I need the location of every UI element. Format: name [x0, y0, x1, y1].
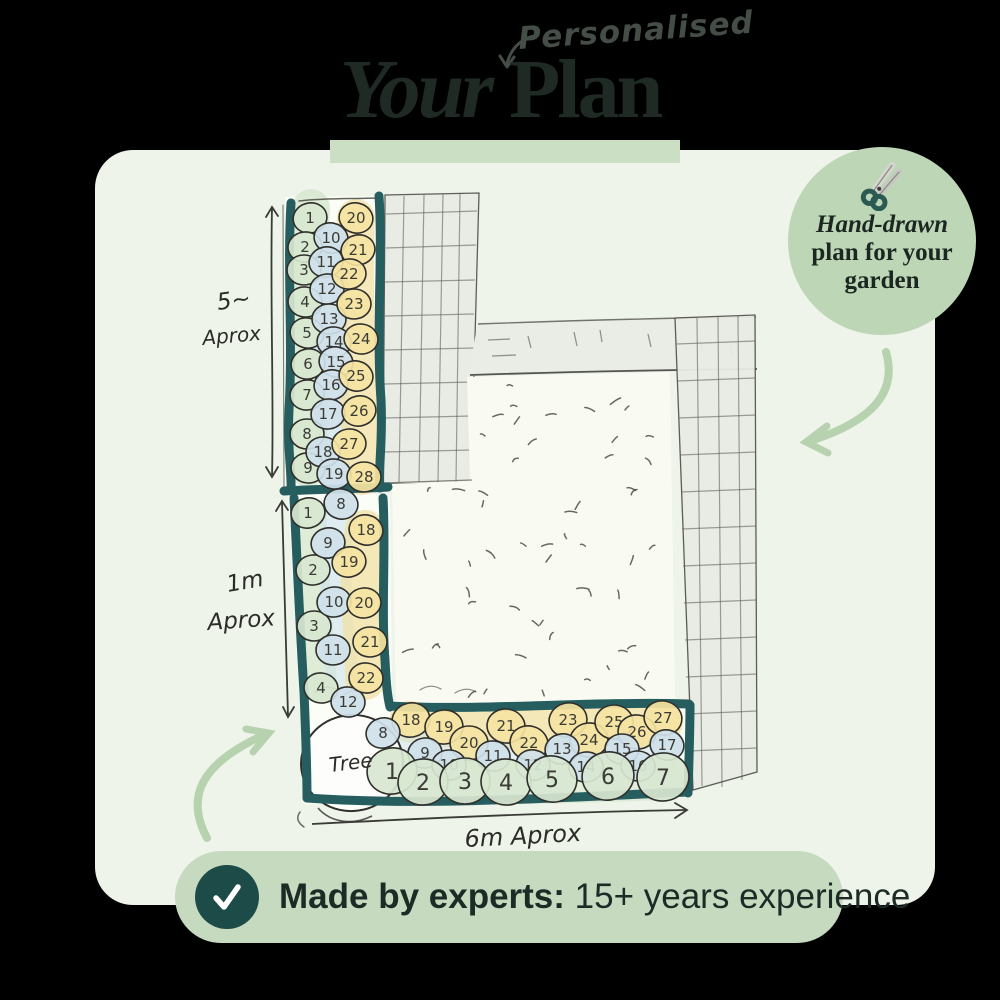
svg-text:12: 12 [317, 280, 336, 298]
svg-text:2: 2 [416, 771, 430, 796]
svg-text:27: 27 [339, 435, 358, 453]
scissors-icon [856, 161, 908, 211]
banner-text: Made by experts: 15+ years experience [279, 877, 910, 917]
svg-text:7: 7 [302, 386, 312, 404]
badge-line3: garden [811, 267, 952, 295]
measurement-left-lower: 1m Aprox [205, 501, 294, 717]
svg-text:3: 3 [299, 261, 309, 279]
svg-text:2: 2 [308, 561, 318, 579]
svg-text:20: 20 [459, 734, 478, 752]
patio-grid-top [383, 193, 479, 484]
svg-text:2: 2 [300, 238, 310, 256]
svg-text:17: 17 [318, 405, 337, 423]
svg-text:6: 6 [303, 355, 313, 373]
badge-arrow-icon [806, 352, 889, 453]
svg-text:26: 26 [349, 402, 368, 420]
svg-text:6: 6 [601, 765, 615, 790]
badge-line1: Hand-drawn [811, 211, 952, 239]
svg-text:7: 7 [656, 766, 670, 791]
dimension-label: 6m Aprox [464, 819, 583, 853]
measurement-left-upper: 5~ Aprox [199, 207, 278, 477]
badge-text: Hand-drawn plan for your garden [811, 211, 952, 295]
svg-text:18: 18 [401, 711, 420, 729]
svg-text:22: 22 [339, 265, 358, 283]
svg-text:8: 8 [302, 425, 312, 443]
svg-text:1: 1 [305, 209, 315, 227]
svg-text:13: 13 [319, 310, 338, 328]
svg-text:12: 12 [338, 693, 357, 711]
svg-text:10: 10 [321, 229, 340, 247]
svg-text:21: 21 [360, 633, 379, 651]
svg-text:24: 24 [351, 330, 370, 348]
svg-text:4: 4 [499, 771, 513, 796]
hand-drawn-badge: Hand-drawn plan for your garden [788, 147, 976, 335]
bottom-left-arrow-icon [198, 729, 269, 838]
plan-svg: 1234567891011121314151617181920212223242… [0, 0, 1000, 1000]
svg-text:22: 22 [356, 669, 375, 687]
svg-text:3: 3 [458, 770, 472, 795]
garden-plan: 1234567891011121314151617181920212223242… [198, 193, 889, 853]
svg-text:24: 24 [579, 731, 598, 749]
badge-line2: plan for your [811, 239, 952, 267]
svg-text:27: 27 [653, 709, 672, 727]
plant-11: 11 [316, 635, 350, 665]
svg-text:20: 20 [354, 594, 373, 612]
banner-regular: 15+ years experience [565, 877, 910, 916]
dimension-label: 1m [225, 566, 266, 598]
plant-23: 23 [337, 289, 371, 319]
dimension-label: 5~ [215, 285, 252, 315]
svg-text:18: 18 [356, 521, 375, 539]
dimension-unit: Aprox [205, 605, 277, 636]
svg-text:20: 20 [346, 209, 365, 227]
banner-bold: Made by experts: [279, 877, 565, 916]
svg-text:19: 19 [324, 465, 343, 483]
svg-text:13: 13 [552, 740, 571, 758]
svg-text:28: 28 [354, 468, 373, 486]
svg-text:23: 23 [558, 711, 577, 729]
svg-text:19: 19 [339, 553, 358, 571]
svg-text:16: 16 [321, 376, 340, 394]
svg-text:3: 3 [309, 617, 319, 635]
svg-text:5: 5 [545, 768, 559, 793]
svg-text:8: 8 [336, 495, 346, 513]
svg-text:9: 9 [323, 534, 333, 552]
svg-text:5: 5 [302, 324, 312, 342]
page: Personalised Your Plan [0, 0, 1000, 1000]
svg-text:8: 8 [378, 724, 388, 742]
svg-text:23: 23 [344, 295, 363, 313]
svg-text:1: 1 [385, 760, 399, 785]
plant-21: 21 [353, 627, 387, 657]
svg-text:4: 4 [300, 293, 310, 311]
measurement-bottom: 6m Aprox [312, 803, 687, 853]
svg-text:17: 17 [657, 736, 676, 754]
svg-text:19: 19 [434, 718, 453, 736]
experts-banner: Made by experts: 15+ years experience [175, 851, 843, 943]
svg-text:10: 10 [324, 593, 343, 611]
plant-28: 28 [347, 462, 381, 492]
svg-text:11: 11 [323, 641, 342, 659]
svg-text:18: 18 [313, 443, 332, 461]
svg-text:4: 4 [316, 679, 326, 697]
checkmark-icon [195, 865, 259, 929]
svg-text:21: 21 [348, 241, 367, 259]
dimension-unit: Aprox [199, 321, 262, 350]
svg-text:1: 1 [303, 504, 313, 522]
svg-text:25: 25 [346, 367, 365, 385]
